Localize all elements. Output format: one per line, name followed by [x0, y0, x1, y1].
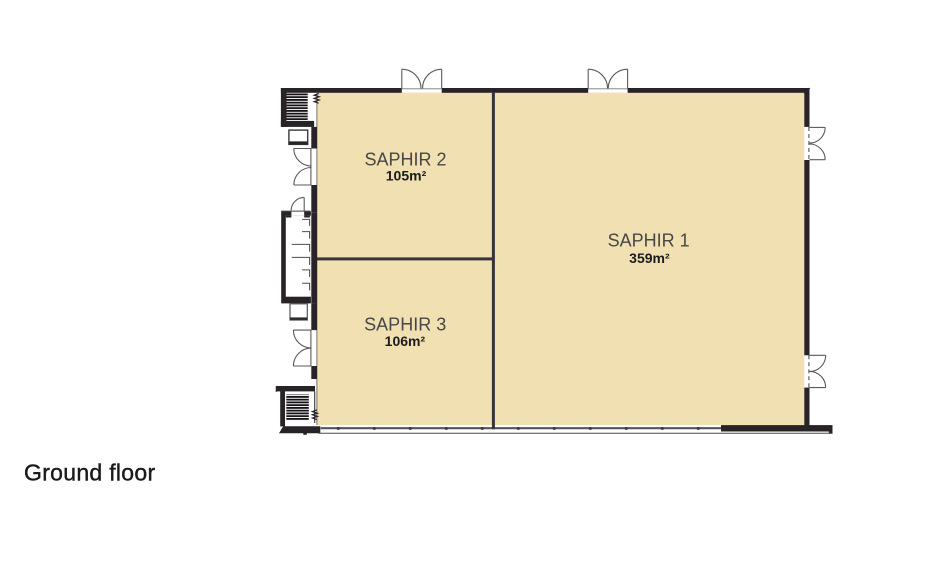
- svg-text:Ground floor: Ground floor: [24, 460, 155, 486]
- svg-text:106m²: 106m²: [385, 333, 426, 349]
- svg-text:105m²: 105m²: [386, 168, 427, 184]
- svg-text:SAPHIR 2: SAPHIR 2: [364, 150, 446, 170]
- svg-text:359m²: 359m²: [629, 250, 670, 266]
- svg-text:SAPHIR 1: SAPHIR 1: [608, 230, 690, 250]
- svg-text:SAPHIR 3: SAPHIR 3: [364, 315, 446, 335]
